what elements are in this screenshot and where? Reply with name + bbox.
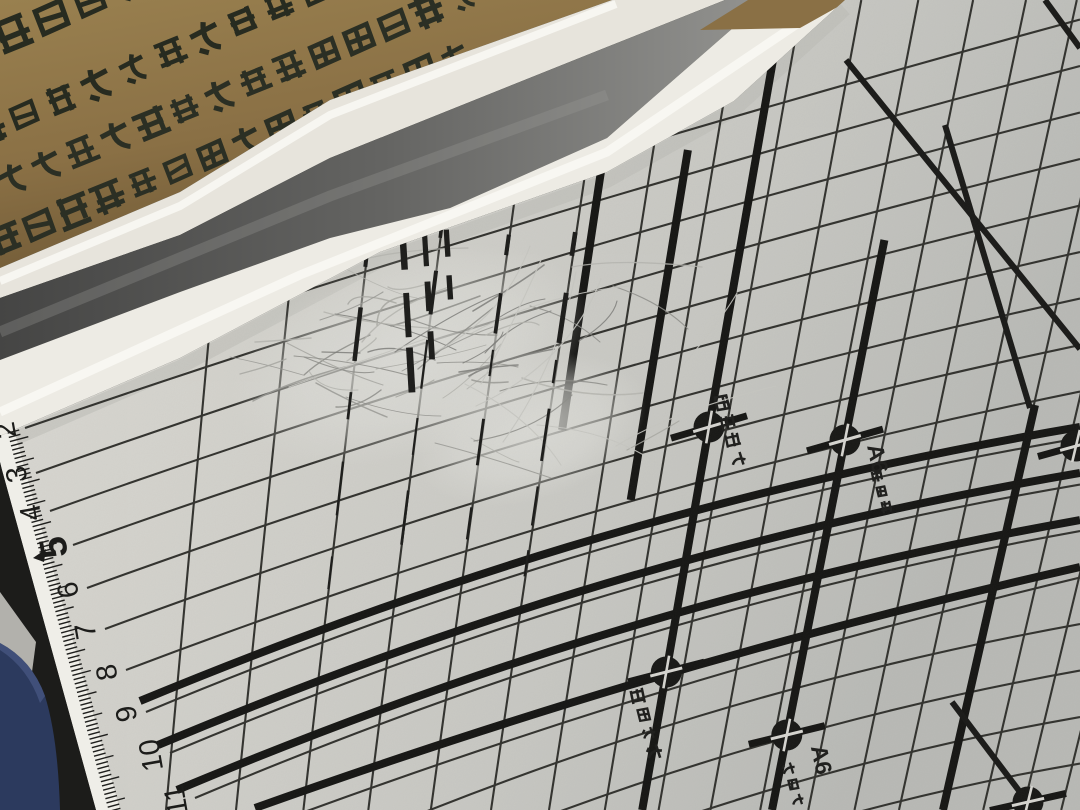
svg-text:10: 10 [133, 737, 170, 774]
